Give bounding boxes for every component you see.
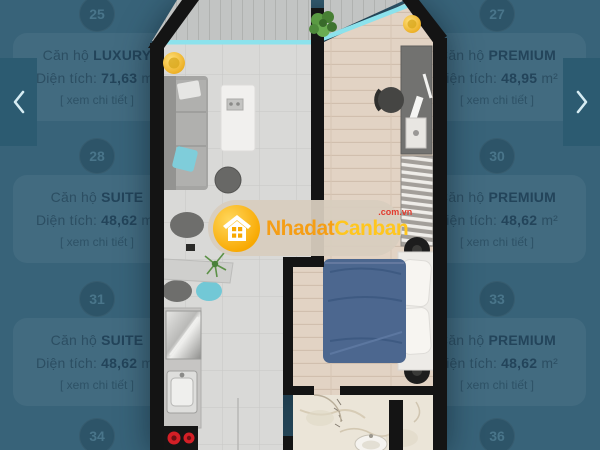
bed-blanket [323,259,406,363]
coffee-table-rug [221,85,255,151]
kitchen-counter [163,308,201,450]
brand-name: .com.vn NhadatCanban [266,218,408,239]
chevron-left-icon [9,85,29,119]
unit-number-badge: 25 [79,0,115,32]
sofa [164,76,208,190]
desk-chair [376,87,404,113]
desk [401,46,432,154]
dining-table [161,259,233,283]
teal-chair [196,281,222,301]
unit-number-badge: 28 [79,138,115,174]
lounge-chair [215,167,241,193]
unit-number-badge: 36 [479,418,515,450]
prev-button[interactable] [0,58,37,146]
house-icon [213,205,260,252]
balcony-glass-door [163,40,311,45]
unit-number-badge: 33 [479,281,515,317]
listing-page: 25 Căn hộ LUXURY Diện tích: 71,63 m² [ x… [0,0,600,450]
unit-number-badge: 34 [79,418,115,450]
stove [163,426,198,450]
brand-watermark: .com.vn NhadatCanban [208,200,402,256]
bed [323,252,435,370]
unit-number-badge: 30 [479,138,515,174]
unit-number-badge: 27 [479,0,515,32]
unit-number-badge: 31 [79,281,115,317]
kitchen-sink [167,371,197,413]
next-button[interactable] [563,58,600,146]
brand-domain: .com.vn [378,208,412,217]
chevron-right-icon [572,85,592,119]
